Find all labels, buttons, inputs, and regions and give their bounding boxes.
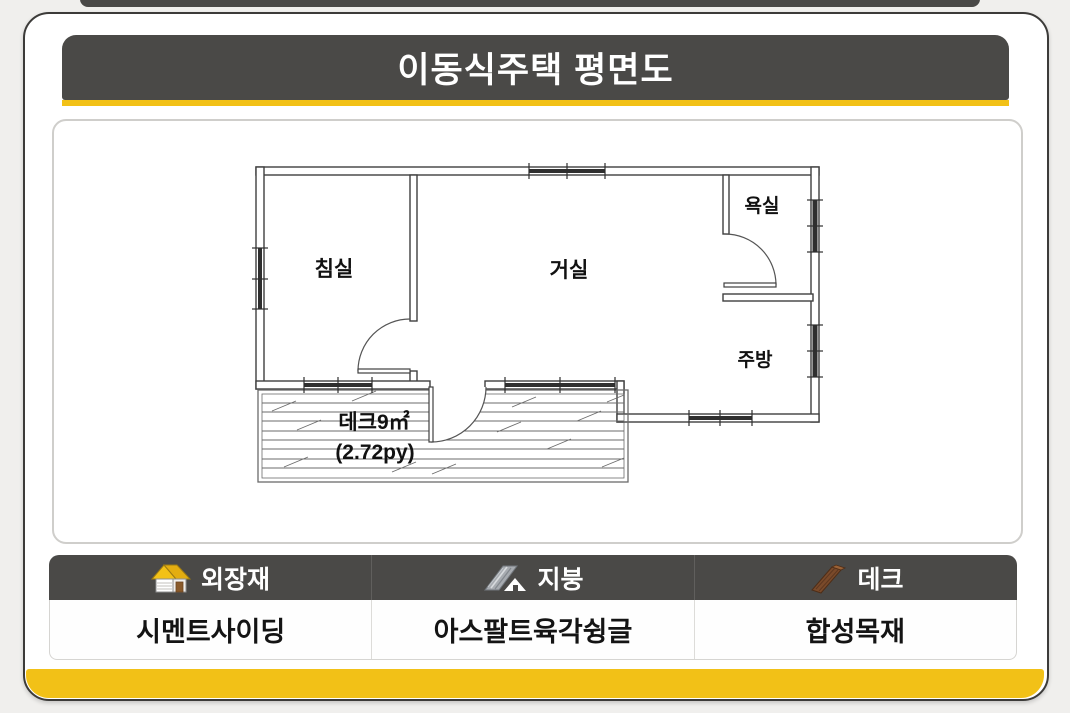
deck-pyeong-label: (2.72py) xyxy=(335,441,414,464)
accent-divider xyxy=(62,100,1009,106)
page-title: 이동식주택 평면도 xyxy=(397,42,673,93)
window-bathroom-right xyxy=(807,200,823,252)
entrance-door xyxy=(429,387,486,442)
legend-header-deck: 데크 xyxy=(694,555,1017,600)
room-label-bedroom: 침실 xyxy=(315,258,354,281)
legend-header-label: 지붕 xyxy=(537,560,583,596)
house-icon xyxy=(150,561,192,595)
legend-value-roof: 아스팔트육각슁글 xyxy=(371,600,693,659)
legend-header-label: 데크 xyxy=(857,560,903,596)
bedroom-door-leaf xyxy=(358,369,410,373)
materials-legend: 외장재 지붕 xyxy=(49,555,1017,660)
legend-header-exterior: 외장재 xyxy=(49,555,371,600)
room-label-bathroom: 욕실 xyxy=(745,195,780,217)
deck-area-label: 데크9㎡ xyxy=(338,410,409,434)
floor-plan-drawing: 침실 거실 욕실 주방 데크9㎡ (2.72py) xyxy=(54,121,1017,538)
bathroom-door-leaf xyxy=(724,283,776,287)
window-bedroom-left xyxy=(252,248,268,309)
bathroom-door xyxy=(724,234,776,287)
wall-bathroom-left xyxy=(723,175,729,234)
entrance-door-leaf xyxy=(429,387,433,442)
window-kitchen-bottom xyxy=(689,410,752,426)
title-bar: 이동식주택 평면도 xyxy=(62,35,1009,100)
bedroom-door xyxy=(358,319,410,373)
window-kitchen-right xyxy=(807,325,823,377)
roof-icon xyxy=(482,562,528,594)
legend-header-roof: 지붕 xyxy=(371,555,694,600)
wall-bathroom-bottom xyxy=(723,294,813,301)
materials-legend-header-row: 외장재 지붕 xyxy=(49,555,1017,600)
window-living-top xyxy=(529,163,605,179)
previous-card-edge xyxy=(80,0,980,7)
room-label-living: 거실 xyxy=(550,259,589,282)
bathroom-door-arc xyxy=(725,234,776,285)
legend-header-label: 외장재 xyxy=(201,560,270,596)
page-background: 이동식주택 평면도 xyxy=(0,0,1070,713)
bottom-accent-bar xyxy=(26,669,1044,698)
wall-bedroom-divider xyxy=(410,175,417,321)
room-label-kitchen: 주방 xyxy=(738,349,773,371)
legend-value-exterior: 시멘트사이딩 xyxy=(50,600,371,659)
legend-value-deck: 합성목재 xyxy=(694,600,1016,659)
bedroom-door-arc xyxy=(358,319,410,371)
floorplan-card: 이동식주택 평면도 xyxy=(23,12,1049,701)
floor-plan-panel: 침실 거실 욕실 주방 데크9㎡ (2.72py) xyxy=(52,119,1023,544)
materials-legend-value-row: 시멘트사이딩 아스팔트육각슁글 합성목재 xyxy=(49,600,1017,660)
deck-icon xyxy=(808,562,848,594)
